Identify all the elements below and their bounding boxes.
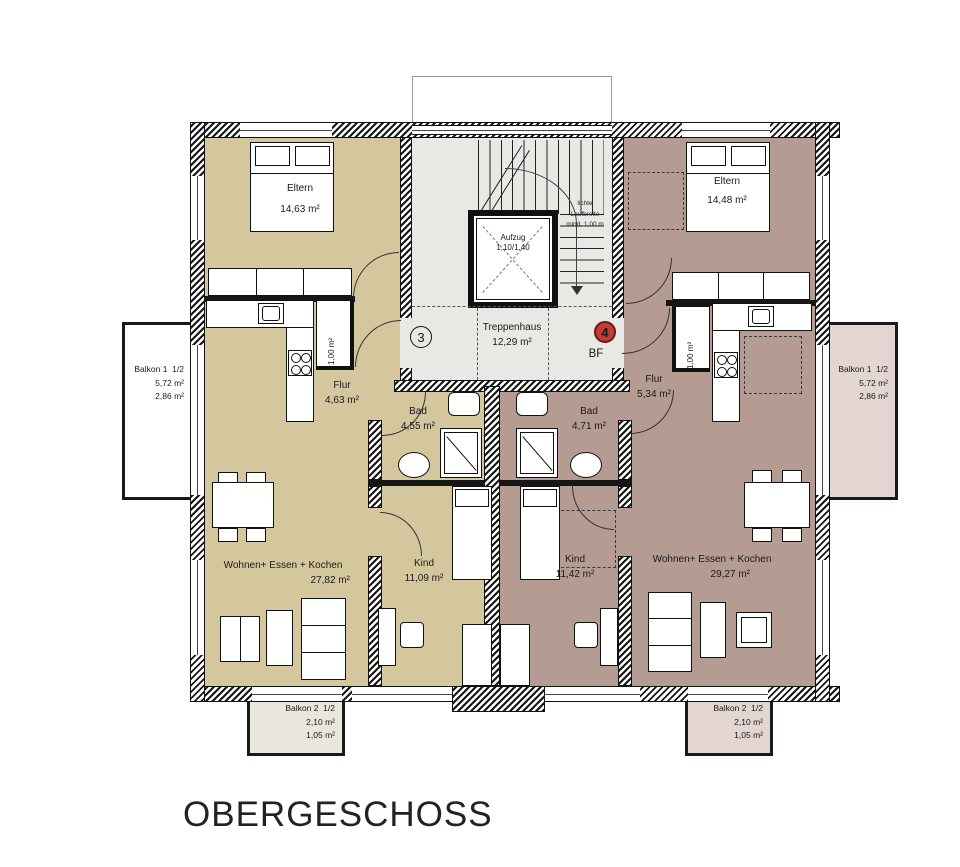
landing-dashed-line-top [412, 306, 612, 307]
stairs-down-arrow [571, 286, 583, 295]
sink-basin [262, 306, 280, 321]
burner [727, 367, 737, 377]
unit-4-number: 4 [601, 325, 608, 340]
desk-left [378, 608, 396, 666]
kind-wardrobe-left [462, 624, 492, 686]
bad-right-label: Bad4,71 m² [558, 404, 620, 434]
window-right-bedroom [815, 176, 830, 240]
sofa-cushion [649, 646, 691, 671]
coffee-table-right [700, 602, 726, 658]
wardrobe-cell [764, 273, 809, 299]
armchair-inner [741, 617, 767, 643]
elevator-shaft: Aufzug 1,10/1,40 [468, 210, 558, 308]
dining-table-right [744, 482, 810, 528]
balcony-1-right: Balkon 1 1/2 5,72 m² 2,86 m² [828, 322, 898, 500]
balcony-1-left-label: Balkon 1 1/2 5,72 m² 2,86 m² [125, 363, 191, 404]
sofa-cushion [302, 653, 345, 679]
balcony-2-left-label: Balkon 2 1/2 2,10 m² 1,05 m² [250, 702, 342, 743]
sofa-cushion [302, 599, 345, 626]
kind-wardrobe-right [500, 624, 530, 686]
wardrobe-right [672, 272, 810, 300]
dining-chair [218, 528, 238, 542]
bf-label: BF [578, 348, 614, 360]
single-bed-left [452, 486, 492, 580]
window-bottom-left [352, 686, 452, 702]
flur-right-label: Flur5,34 m² [626, 372, 682, 402]
burner [291, 365, 301, 375]
sofa-cushion [241, 617, 260, 661]
wall-bottom-center-pier [452, 686, 545, 712]
pillow [691, 146, 726, 166]
layout-dashed-zone-kitchen-right [744, 336, 802, 394]
pillow [255, 146, 290, 166]
closet-right-label: 1,00 m² [686, 311, 695, 369]
wardrobe-left [208, 268, 352, 296]
shower-right [516, 428, 558, 478]
unit-4-marker: 4 [594, 321, 616, 343]
kind-right-wall-lower [618, 556, 632, 686]
closet-right: 1,00 m² [672, 306, 710, 372]
kind-right-wall-upper [618, 486, 632, 508]
canopy-outline [412, 76, 612, 124]
dining-chair [752, 528, 772, 542]
sofa-large-right [648, 592, 692, 672]
desk-chair-left [400, 622, 424, 648]
unit-3-marker: 3 [410, 326, 432, 348]
wohnen-right-label: Wohnen+ Essen + Kochen 29,27 m² [644, 552, 780, 582]
wardrobe-cell [719, 273, 765, 299]
bad-left-west-wall [368, 420, 382, 480]
stairwell-label: Treppenhaus 12,29 m² [452, 320, 572, 350]
stove-right [714, 352, 738, 378]
toilet-right [570, 452, 602, 478]
floor-plan: Balkon 1 1/2 5,72 m² 2,86 m² Balkon 1 1/… [0, 0, 960, 867]
window-right-living [815, 560, 830, 655]
sofa-cushion [649, 619, 691, 645]
washbasin-right [516, 392, 548, 416]
balcony-1-left: Balkon 1 1/2 5,72 m² 2,86 m² [122, 322, 192, 500]
wardrobe-cell [257, 269, 305, 295]
wohnen-left-label: Wohnen+ Essen + Kochen 27,82 m² [212, 558, 354, 588]
dining-table-left [212, 482, 274, 528]
stairwell-wall-bottom [394, 380, 630, 392]
armchair-right [736, 612, 772, 648]
balcony-2-left: Balkon 2 1/2 2,10 m² 1,05 m² [247, 700, 345, 756]
washbasin-left [448, 392, 480, 416]
burner [301, 353, 311, 363]
sofa-cushion [649, 593, 691, 619]
kind-left-wall-upper [368, 486, 382, 508]
unit-3-number: 3 [417, 330, 424, 345]
burner [717, 355, 727, 365]
balcony-1-right-label: Balkon 1 1/2 5,72 m² 2,86 m² [829, 363, 895, 404]
sofa-large-left [301, 598, 346, 680]
stove-left [288, 350, 312, 376]
shower-left [440, 428, 482, 478]
page-title: OBERGESCHOSS [183, 795, 493, 835]
window-top-left-bedroom [240, 122, 332, 138]
window-left-living [190, 560, 205, 655]
closet-left: 1,00 m² [316, 300, 354, 370]
layout-dashed-zone-eltern-right [628, 172, 684, 230]
coffee-table-left [266, 610, 293, 666]
kind-left-label: Kind11,09 m² [396, 556, 452, 586]
burner [291, 353, 301, 363]
pillow [523, 489, 557, 507]
dining-chair [782, 528, 802, 542]
window-stairwell-top [412, 125, 612, 135]
window-bottom-right [545, 686, 640, 702]
dining-chair [246, 528, 266, 542]
pillow [295, 146, 330, 166]
burner [301, 365, 311, 375]
eltern-right-label: Eltern14,48 m² [692, 172, 762, 210]
desk-right [600, 608, 618, 666]
balcony2-door-right [688, 686, 768, 702]
balcony-2-right: Balkon 2 1/2 2,10 m² 1,05 m² [685, 700, 773, 756]
eltern-left-label: Eltern14,63 m² [262, 178, 338, 220]
sofa-cushion [221, 617, 241, 661]
wardrobe-cell [673, 273, 719, 299]
window-top-right-bedroom [682, 122, 770, 138]
window-left-bedroom [190, 176, 205, 240]
burner [727, 355, 737, 365]
bad-left-label: Bad4,55 m² [388, 404, 448, 434]
balcony-2-right-label: Balkon 2 1/2 2,10 m² 1,05 m² [688, 702, 770, 743]
sink-basin [752, 309, 770, 324]
flur-left-label: Flur4,63 m² [314, 378, 370, 408]
kitchen-sink-right [748, 306, 774, 327]
kitchen-sink-left [258, 303, 284, 324]
elevator-label: Aufzug 1,10/1,40 [477, 233, 549, 254]
balcony2-door-left [252, 686, 342, 702]
pillow [455, 489, 489, 507]
closet-left-label: 1,00 m² [327, 307, 336, 365]
blanket-line [251, 173, 333, 174]
stairs-walk-line-vertical [576, 222, 577, 286]
desk-chair-right [574, 622, 598, 648]
balcony-door-left [190, 345, 205, 495]
sofa-cushion [302, 626, 345, 653]
pillow [731, 146, 766, 166]
balcony-door-right [815, 345, 830, 495]
burner [717, 367, 727, 377]
entrance-gap-left [400, 318, 412, 368]
sofa-small-left [220, 616, 260, 662]
kind-right-label: Kind11,42 m² [546, 552, 604, 582]
wardrobe-cell [304, 269, 351, 295]
toilet-left [398, 452, 430, 478]
wardrobe-cell [209, 269, 257, 295]
elevator-inner-wall: Aufzug 1,10/1,40 [476, 218, 550, 300]
